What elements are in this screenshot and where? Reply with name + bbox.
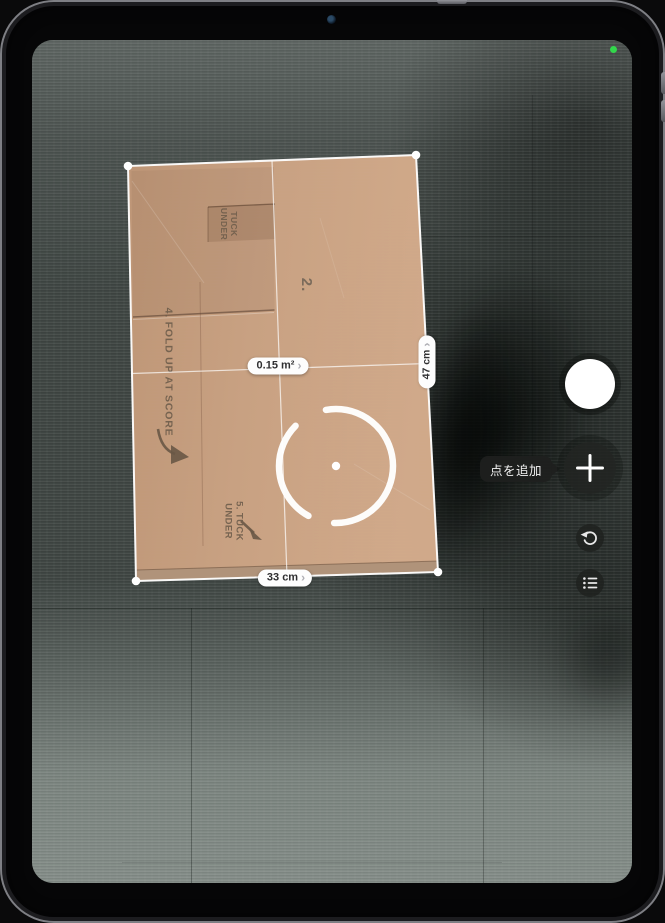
volume-down-button[interactable] bbox=[661, 100, 665, 122]
shutter-button[interactable] bbox=[565, 359, 615, 409]
undo-icon bbox=[576, 524, 604, 552]
bottom-edge-measurement-label[interactable]: 33 cm › bbox=[258, 570, 312, 587]
chevron-right-icon: › bbox=[301, 573, 305, 583]
corner-point bbox=[412, 151, 421, 160]
top-button[interactable] bbox=[437, 0, 467, 4]
measure-app-camera-view[interactable]: 2. TUCK UNDER 4. FOLD UP AT SCORE 5. TUC… bbox=[32, 40, 632, 883]
camera-active-indicator bbox=[610, 46, 617, 53]
area-value: 0.15 m² bbox=[257, 360, 295, 372]
add-point-button[interactable] bbox=[564, 442, 616, 494]
corner-point bbox=[132, 577, 141, 586]
add-point-tooltip: 点を追加 bbox=[480, 456, 552, 482]
reticle-center-dot bbox=[332, 462, 340, 470]
right-edge-measurement-label[interactable]: 47 cm › bbox=[419, 336, 436, 389]
front-camera bbox=[327, 15, 336, 24]
undo-button[interactable] bbox=[576, 524, 604, 552]
list-icon bbox=[576, 569, 604, 597]
corner-point bbox=[434, 568, 443, 577]
right-edge-value: 47 cm bbox=[421, 350, 433, 380]
chevron-right-icon: › bbox=[422, 343, 432, 347]
corner-point bbox=[124, 162, 133, 171]
volume-up-button[interactable] bbox=[661, 72, 665, 94]
ipad-device: 2. TUCK UNDER 4. FOLD UP AT SCORE 5. TUC… bbox=[0, 0, 665, 923]
plus-icon bbox=[564, 442, 616, 494]
reticle bbox=[279, 409, 393, 523]
area-measurement-label[interactable]: 0.15 m² › bbox=[248, 358, 309, 375]
measurement-list-button[interactable] bbox=[576, 569, 604, 597]
chevron-right-icon: › bbox=[297, 361, 301, 371]
tooltip-text: 点を追加 bbox=[490, 460, 542, 479]
bottom-edge-value: 33 cm bbox=[267, 572, 298, 584]
